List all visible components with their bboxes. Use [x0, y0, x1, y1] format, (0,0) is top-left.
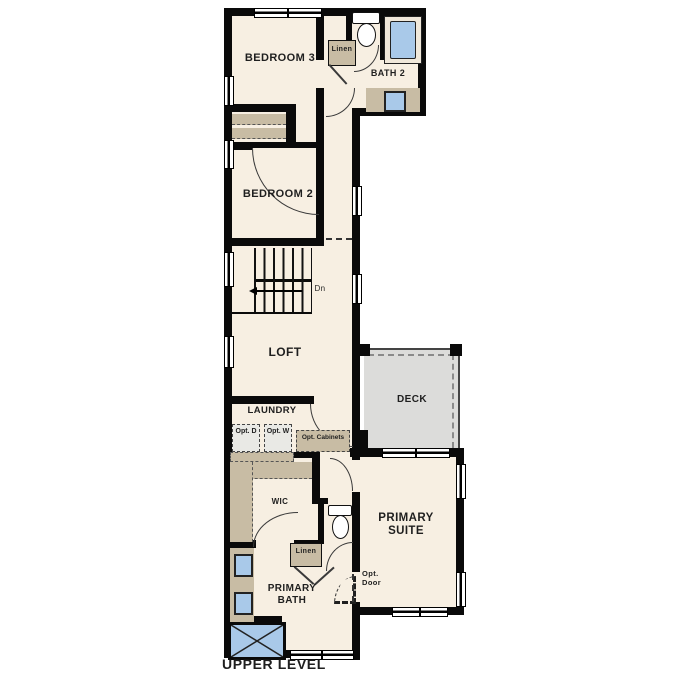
- window-bedroom3-left: [224, 76, 234, 106]
- page-title: UPPER LEVEL: [222, 656, 362, 672]
- window-stairs-left: [224, 252, 234, 287]
- label-primary-suite: PRIMARY SUITE: [366, 512, 446, 538]
- window-suite-right-2: [456, 572, 466, 607]
- window-suite-bottom-1: [392, 607, 420, 617]
- opt-dryer-box: Opt. D: [232, 424, 260, 452]
- toilet-bowl-bath2: [357, 23, 376, 47]
- label-laundry: LAUNDRY: [234, 406, 310, 417]
- label-wic: WIC: [258, 497, 302, 506]
- label-bedroom2: BEDROOM 2: [232, 188, 324, 201]
- bathtub-basin-bath2: [390, 21, 416, 59]
- window-bedroom2-left: [224, 140, 234, 169]
- label-bath2: BATH 2: [368, 68, 408, 78]
- stairs: [254, 248, 312, 312]
- wic-shelf-left: [230, 462, 253, 542]
- stairs-arrow-head: [249, 287, 257, 295]
- label-loft: LOFT: [250, 346, 320, 360]
- window-suite-bottom-2: [420, 607, 448, 617]
- window-deck-door-2: [416, 448, 450, 458]
- stairs-bottom-edge: [230, 312, 312, 314]
- opt-cabinets-strip: [230, 452, 294, 462]
- sink-primary-1: [234, 554, 253, 577]
- label-deck: DECK: [390, 394, 434, 406]
- opt-door-leaf-dashed: [352, 574, 354, 602]
- door-opening-primary-suite: [352, 460, 360, 492]
- label-stairs-dn: Dn: [308, 284, 332, 293]
- shower-x-icon: [231, 625, 283, 657]
- label-opt-door: Opt. Door: [358, 570, 396, 587]
- window-bedroom3-top-1: [254, 8, 288, 18]
- window-bedroom3-top-2: [288, 8, 322, 18]
- deck-post-right: [450, 344, 462, 356]
- window-suite-right-1: [456, 464, 466, 499]
- opt-washer-box: Opt. W: [264, 424, 292, 452]
- wall-laundry-north: [224, 396, 314, 404]
- sink-primary-2: [234, 592, 253, 615]
- linen-closet-upper: Linen: [328, 40, 356, 66]
- closet-shelf-1: [232, 114, 286, 125]
- stairs-arrow-line: [256, 290, 302, 292]
- window-loft-left: [224, 336, 234, 368]
- toilet-bowl-primary: [332, 515, 349, 539]
- window-deck-door-1: [382, 448, 416, 458]
- wall-toiletroom-west: [318, 504, 324, 544]
- floor-plan: Linen Opt. D Opt. W Opt. Cabinets Linen …: [0, 0, 687, 687]
- wall-bedroom2-south: [224, 238, 324, 246]
- sink-bath2: [384, 91, 406, 112]
- window-hall-right-1: [352, 186, 362, 216]
- wall-closet-north: [230, 104, 294, 112]
- dashed-break-hall: [326, 238, 352, 240]
- shower-fixture: [228, 622, 286, 660]
- linen-closet-lower: Linen: [290, 543, 322, 567]
- wall-wic-east: [312, 452, 320, 504]
- closet-shelf-2: [232, 128, 286, 139]
- opt-cabinets-box: Opt. Cabinets: [296, 430, 350, 452]
- window-loft-right: [352, 274, 362, 304]
- label-bedroom3: BEDROOM 3: [234, 52, 326, 65]
- label-primary-bath: PRIMARY BATH: [252, 583, 332, 606]
